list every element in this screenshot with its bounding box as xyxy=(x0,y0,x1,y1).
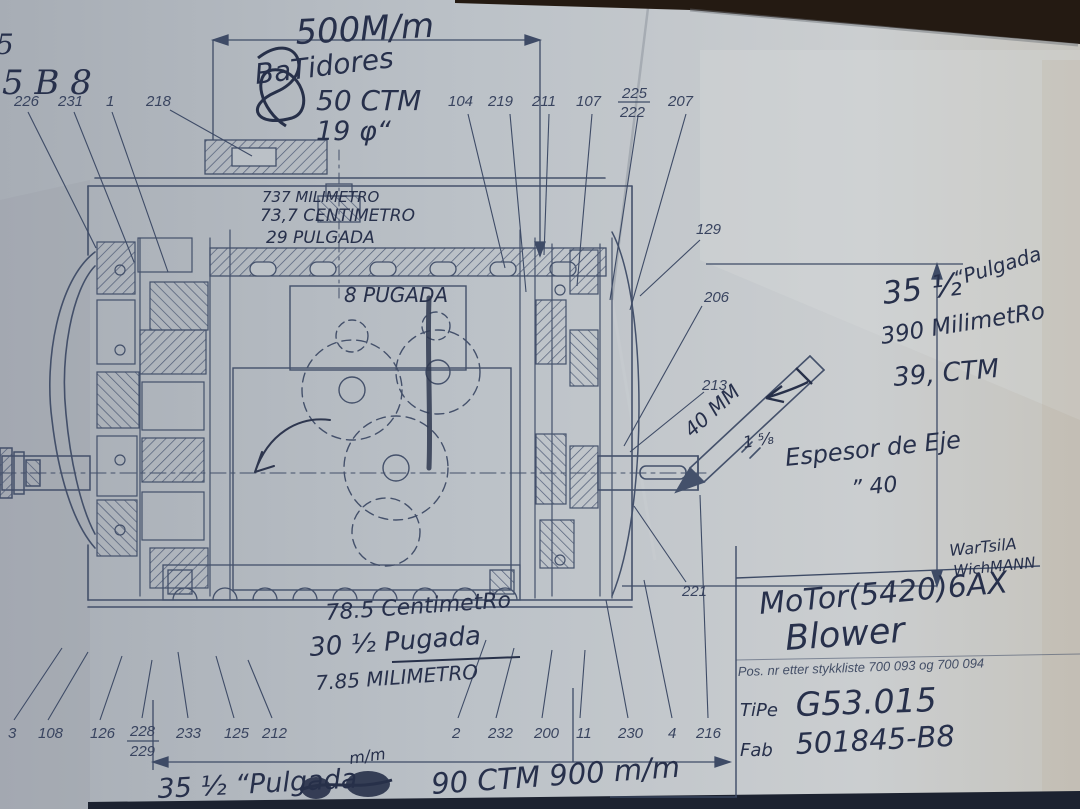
part-label-206: 206 xyxy=(703,289,730,306)
part-label-232: 232 xyxy=(487,725,514,742)
blower-label: Blower xyxy=(784,611,909,659)
blueprint-canvas: 226 231 1 218 104 219 211 107 225 222 20… xyxy=(0,0,1080,809)
roof-notch xyxy=(430,262,456,276)
type-value: G53.015 xyxy=(795,680,937,724)
annotation-29-in: 29 PULGADA xyxy=(266,228,375,248)
roof-band xyxy=(210,248,606,276)
part-label-4: 4 xyxy=(668,725,676,742)
pen-mark-vertical xyxy=(428,298,429,468)
part-label-233: 233 xyxy=(175,725,202,742)
part-label-11: 11 xyxy=(576,725,592,742)
fab-label: Fab xyxy=(740,740,773,761)
part-label-229: 229 xyxy=(129,743,156,760)
part-label-3: 3 xyxy=(8,725,17,742)
hatch-region xyxy=(536,434,566,504)
roof-notch xyxy=(490,262,516,276)
part-label-108: 108 xyxy=(38,725,64,742)
part-label-200: 200 xyxy=(533,725,560,742)
hatch-region xyxy=(540,520,574,568)
part-label-221: 221 xyxy=(681,583,707,600)
part-label-2: 2 xyxy=(451,725,461,742)
roof-notch xyxy=(310,262,336,276)
hatch-region xyxy=(140,330,206,374)
hatch-region xyxy=(150,282,208,330)
part-label-212: 212 xyxy=(261,725,288,742)
annotation-espesor-value: ” 40 xyxy=(850,472,899,502)
hatch-region xyxy=(570,330,598,386)
part-label-125: 125 xyxy=(224,725,250,742)
part-label-216: 216 xyxy=(695,725,722,742)
hatch-region xyxy=(570,250,598,294)
part-label-218: 218 xyxy=(145,93,172,110)
blueprint-photo: { "corner_notes": { "fragment": "5", "co… xyxy=(0,0,1080,809)
part-label-230: 230 xyxy=(617,725,644,742)
paper-warm-edge xyxy=(1042,60,1080,795)
hatch-region xyxy=(570,446,598,508)
corner-fragment-note: 5 xyxy=(0,28,14,61)
annotation-8-pugada: 8 PUGADA xyxy=(344,283,448,307)
hatch-region xyxy=(142,438,204,482)
corner-code-note: 5 B 8 xyxy=(2,63,92,103)
part-label-104: 104 xyxy=(448,93,473,110)
part-label-129: 129 xyxy=(696,221,722,238)
annotation-50-ctm: 50 CTM xyxy=(316,84,421,117)
part-label-1: 1 xyxy=(106,93,114,110)
part-label-126: 126 xyxy=(90,725,116,742)
hatch-region xyxy=(97,500,137,556)
type-label: TiPe xyxy=(740,700,778,721)
annotation-737-mm: 737 MILIMETRO xyxy=(262,188,380,206)
annotation-737-cm: 73,7 CENTIMETRO xyxy=(260,206,415,226)
top-left-section-window xyxy=(232,148,276,166)
part-label-207: 207 xyxy=(667,93,694,110)
part-label-225: 225 xyxy=(621,85,648,102)
hatch-region xyxy=(97,372,139,428)
annotation-19-dia: 19 φ“ xyxy=(316,116,392,147)
roof-notch xyxy=(370,262,396,276)
part-label-222: 222 xyxy=(619,104,646,121)
part-label-219: 219 xyxy=(487,93,514,110)
roof-notch xyxy=(250,262,276,276)
hatch-region xyxy=(168,570,192,594)
hatch-region xyxy=(536,300,566,364)
part-label-211: 211 xyxy=(531,93,556,110)
part-label-228: 228 xyxy=(129,723,156,740)
part-label-107: 107 xyxy=(576,93,602,110)
